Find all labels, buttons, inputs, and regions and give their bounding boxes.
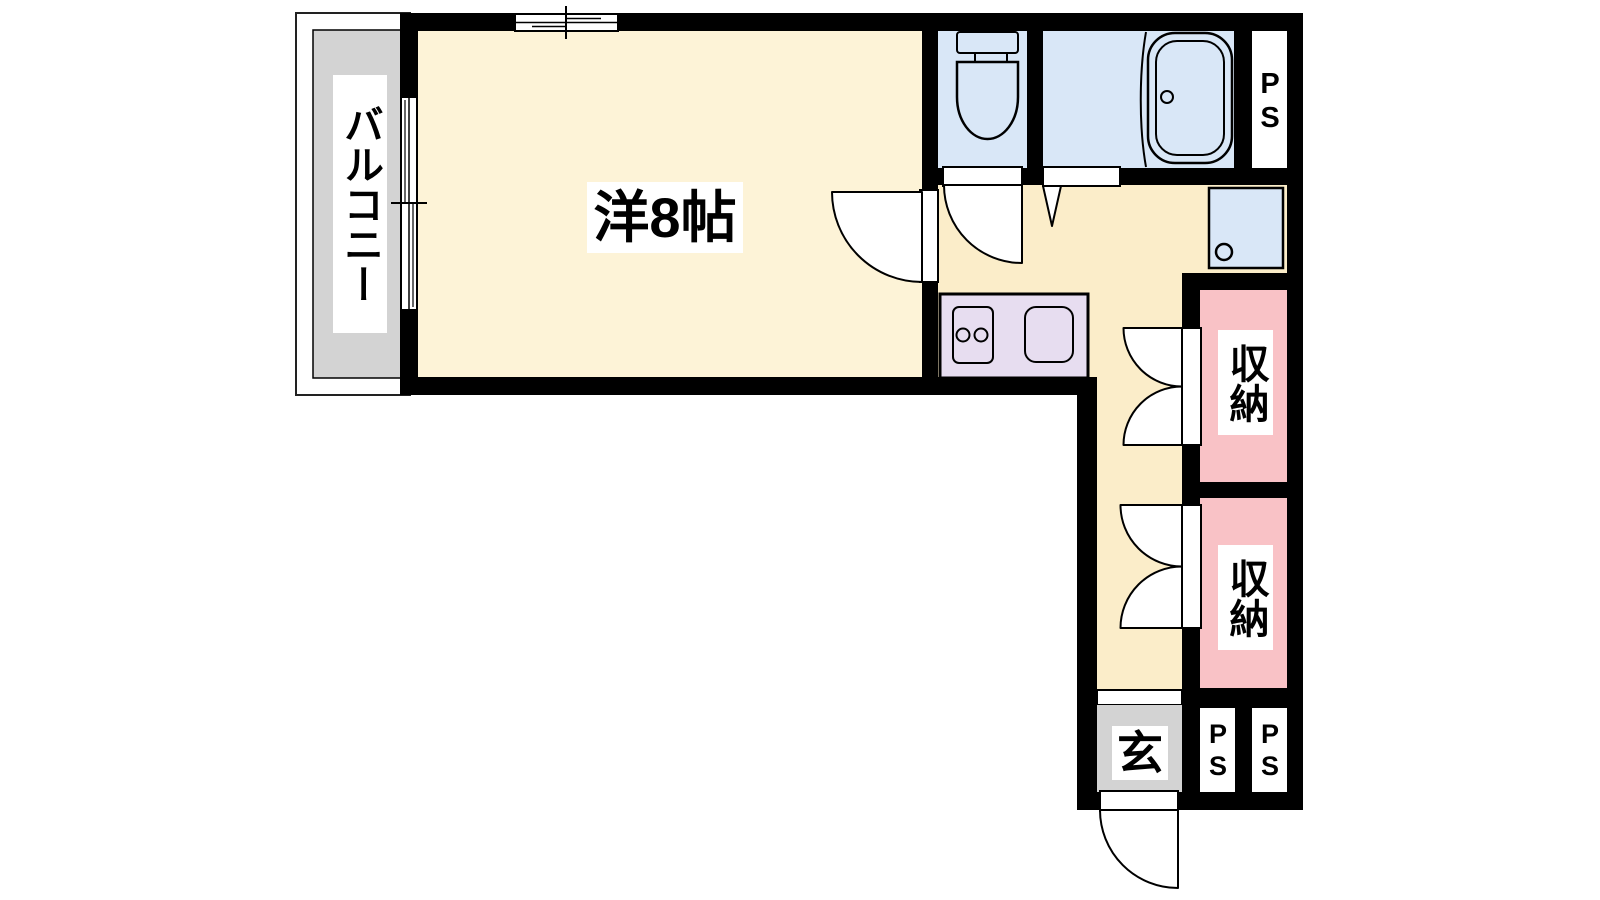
toilet-icon [957, 32, 1018, 139]
storage-upper-opening [1181, 328, 1201, 445]
label-balcony: バルコニー [333, 75, 387, 333]
entrance-step [1097, 690, 1182, 705]
entrance-door-opening [1100, 791, 1178, 811]
floor-plan: 洋8帖 バルコニー 収納 収納 玄 PS PS PS [0, 0, 1600, 900]
label-storage-upper: 収納 [1218, 330, 1273, 435]
room-fills [296, 13, 1287, 793]
entrance-door-swing-icon [1100, 810, 1178, 888]
label-entrance: 玄 [1112, 726, 1168, 780]
label-ps-bottom-right: PS [1252, 716, 1287, 786]
bath-door-opening [1043, 167, 1120, 186]
label-storage-lower: 収納 [1218, 545, 1273, 650]
toilet-door-opening [943, 167, 1022, 186]
storage-lower-opening [1181, 505, 1201, 628]
label-western-room: 洋8帖 [587, 182, 743, 253]
washing-machine-pan-icon [1209, 188, 1283, 268]
label-ps-top: PS [1252, 66, 1287, 138]
floor-plan-drawing [0, 0, 1600, 900]
label-ps-bottom-left: PS [1200, 716, 1235, 786]
kitchen-counter [940, 294, 1088, 378]
bath-room-floor [1043, 31, 1234, 168]
